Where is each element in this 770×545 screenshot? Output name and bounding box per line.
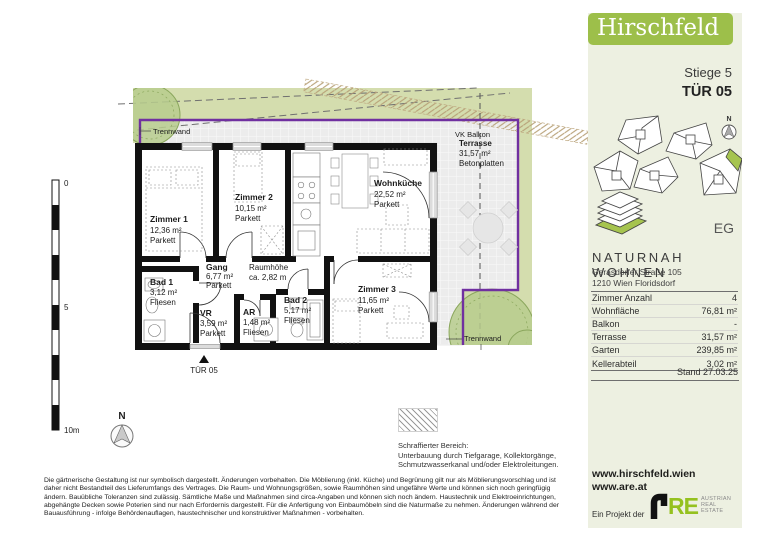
website-links: www.hirschfeld.wien www.are.at [592,468,695,494]
are-mark-icon [650,493,668,520]
tuer-label: TÜR 05 [682,84,732,100]
svg-text:10m: 10m [64,426,80,435]
svg-text:N: N [118,411,125,422]
room-area: 1,48 m² [243,318,270,327]
building-stack-icon [596,192,646,234]
room-name: Bad 1 [150,277,173,287]
room-name: Zimmer 1 [150,214,188,224]
svg-text:5: 5 [64,303,69,312]
room-floor: Parkett [374,200,400,209]
room-area: 6,77 m² [206,272,233,281]
are-logo: RE AUSTRIAN REAL ESTATE [650,493,731,520]
svg-text:N: N [726,116,731,123]
fact-row: Zimmer Anzahl 4 [591,292,738,305]
disclaimer-line: ändern. Bauübliche Toleranzen sind zuläs… [44,494,559,502]
room-floor: Parkett [200,329,226,338]
floor-level-label: EG [714,220,734,236]
terrace-name: Terrasse [459,139,492,148]
are-caption: AUSTRIAN REAL ESTATE [701,496,731,515]
room-name: Gang [206,262,228,272]
disclaimer-line: abgehängte Decken sowie Poterien sind nu… [44,502,559,510]
site-building-highlighted [700,149,742,195]
project-of-label: Ein Projekt der [592,510,644,519]
fact-row: Garten 239,85 m² [591,344,738,357]
room-name: Zimmer 2 [235,192,273,202]
brand-banner: Hirschfeld [588,13,733,45]
room-area: 5,17 m² [284,306,311,315]
fact-row: Balkon - [591,318,738,331]
stiege-label: Stiege 5 [684,65,732,80]
site-building [594,151,638,191]
disclaimer-line: daher nicht Bestandteil des Lieferumfang… [44,485,559,493]
website-link[interactable]: www.hirschfeld.wien [592,468,695,481]
room-name: Bad 2 [284,295,307,305]
disclaimer-line: Die gärtnerische Gestaltung ist nur symb… [44,477,559,485]
are-letters: RE [668,493,698,519]
north-compass-icon: N [111,411,133,447]
vk-balkon-label: VK Balkon [455,130,490,139]
disclaimer-line: Bauausführung - infolge Behördenauflagen… [44,510,559,518]
room-area: 22,52 m² [374,190,406,199]
legend-line: Unterbauung durch Tiefgarage, Kollektorg… [398,451,559,461]
sidebar: Hirschfeld Stiege 5 TÜR 05 [588,13,742,528]
hatch-swatch-icon [398,408,438,432]
sitemap-compass-icon: N [722,116,736,139]
project-address-line1: Gerasdorfer Straße 105 [592,267,682,277]
trennwand-bottom-label: Trennwand [464,334,501,343]
room-area: 11,65 m² [358,296,389,305]
room-name: Zimmer 3 [358,284,396,294]
site-building [634,157,678,193]
trennwand-top-label: Trennwand [153,127,190,136]
room-floor: Parkett [150,236,176,245]
terrace-area: 31,57 m² [459,149,491,158]
room-floor: Parkett [235,214,261,223]
hatch-legend: Schraffierter Bereich: Unterbauung durch… [398,408,559,470]
room-floor: Fliesen [150,298,176,307]
stand-date: Stand 27.03.25 [591,365,739,381]
site-building [666,123,712,159]
raumhoehe-note: Raumhöhe [249,263,289,272]
site-map: N EG [588,111,742,241]
room-area: 3,12 m² [150,288,177,297]
legend-title: Schraffierter Bereich: [398,441,559,451]
raumhoehe-note: ca. 2,82 m [249,273,287,282]
facts-table: Zimmer Anzahl 4 Wohnfläche 76,81 m² Balk… [591,291,738,371]
project-address-line2: 1210 Wien Floridsdorf [592,278,675,288]
room-floor: Parkett [206,281,232,290]
brand-name: Hirschfeld [588,13,733,44]
entrance-marker: TÜR 05 [190,355,218,375]
svg-text:TÜR 05: TÜR 05 [190,366,218,375]
room-area: 3,59 m² [200,319,227,328]
disclaimer-text: Die gärtnerische Gestaltung ist nur symb… [44,477,559,518]
room-name: Wohnküche [374,178,422,188]
fact-row: Terrasse 31,57 m² [591,331,738,344]
site-building [618,116,662,154]
fact-row: Wohnfläche 76,81 m² [591,305,738,318]
floorplan-sheet: Zimmer 1 12,36 m² Parkett Zimmer 2 10,15… [0,0,770,545]
scale-bar: 0 5 10m [52,179,80,435]
room-floor: Fliesen [284,316,310,325]
room-area: 12,36 m² [150,226,182,235]
room-name: AR [243,307,255,317]
room-area: 10,15 m² [235,204,267,213]
terrace-surface: Betonplatten [459,159,504,168]
svg-text:0: 0 [64,179,69,188]
room-floor: Parkett [358,306,384,315]
legend-line: Schmutzwasserkanal und/oder Elektroleitu… [398,460,559,470]
room-floor: Fliesen [243,328,269,337]
room-name: VR [200,308,212,318]
